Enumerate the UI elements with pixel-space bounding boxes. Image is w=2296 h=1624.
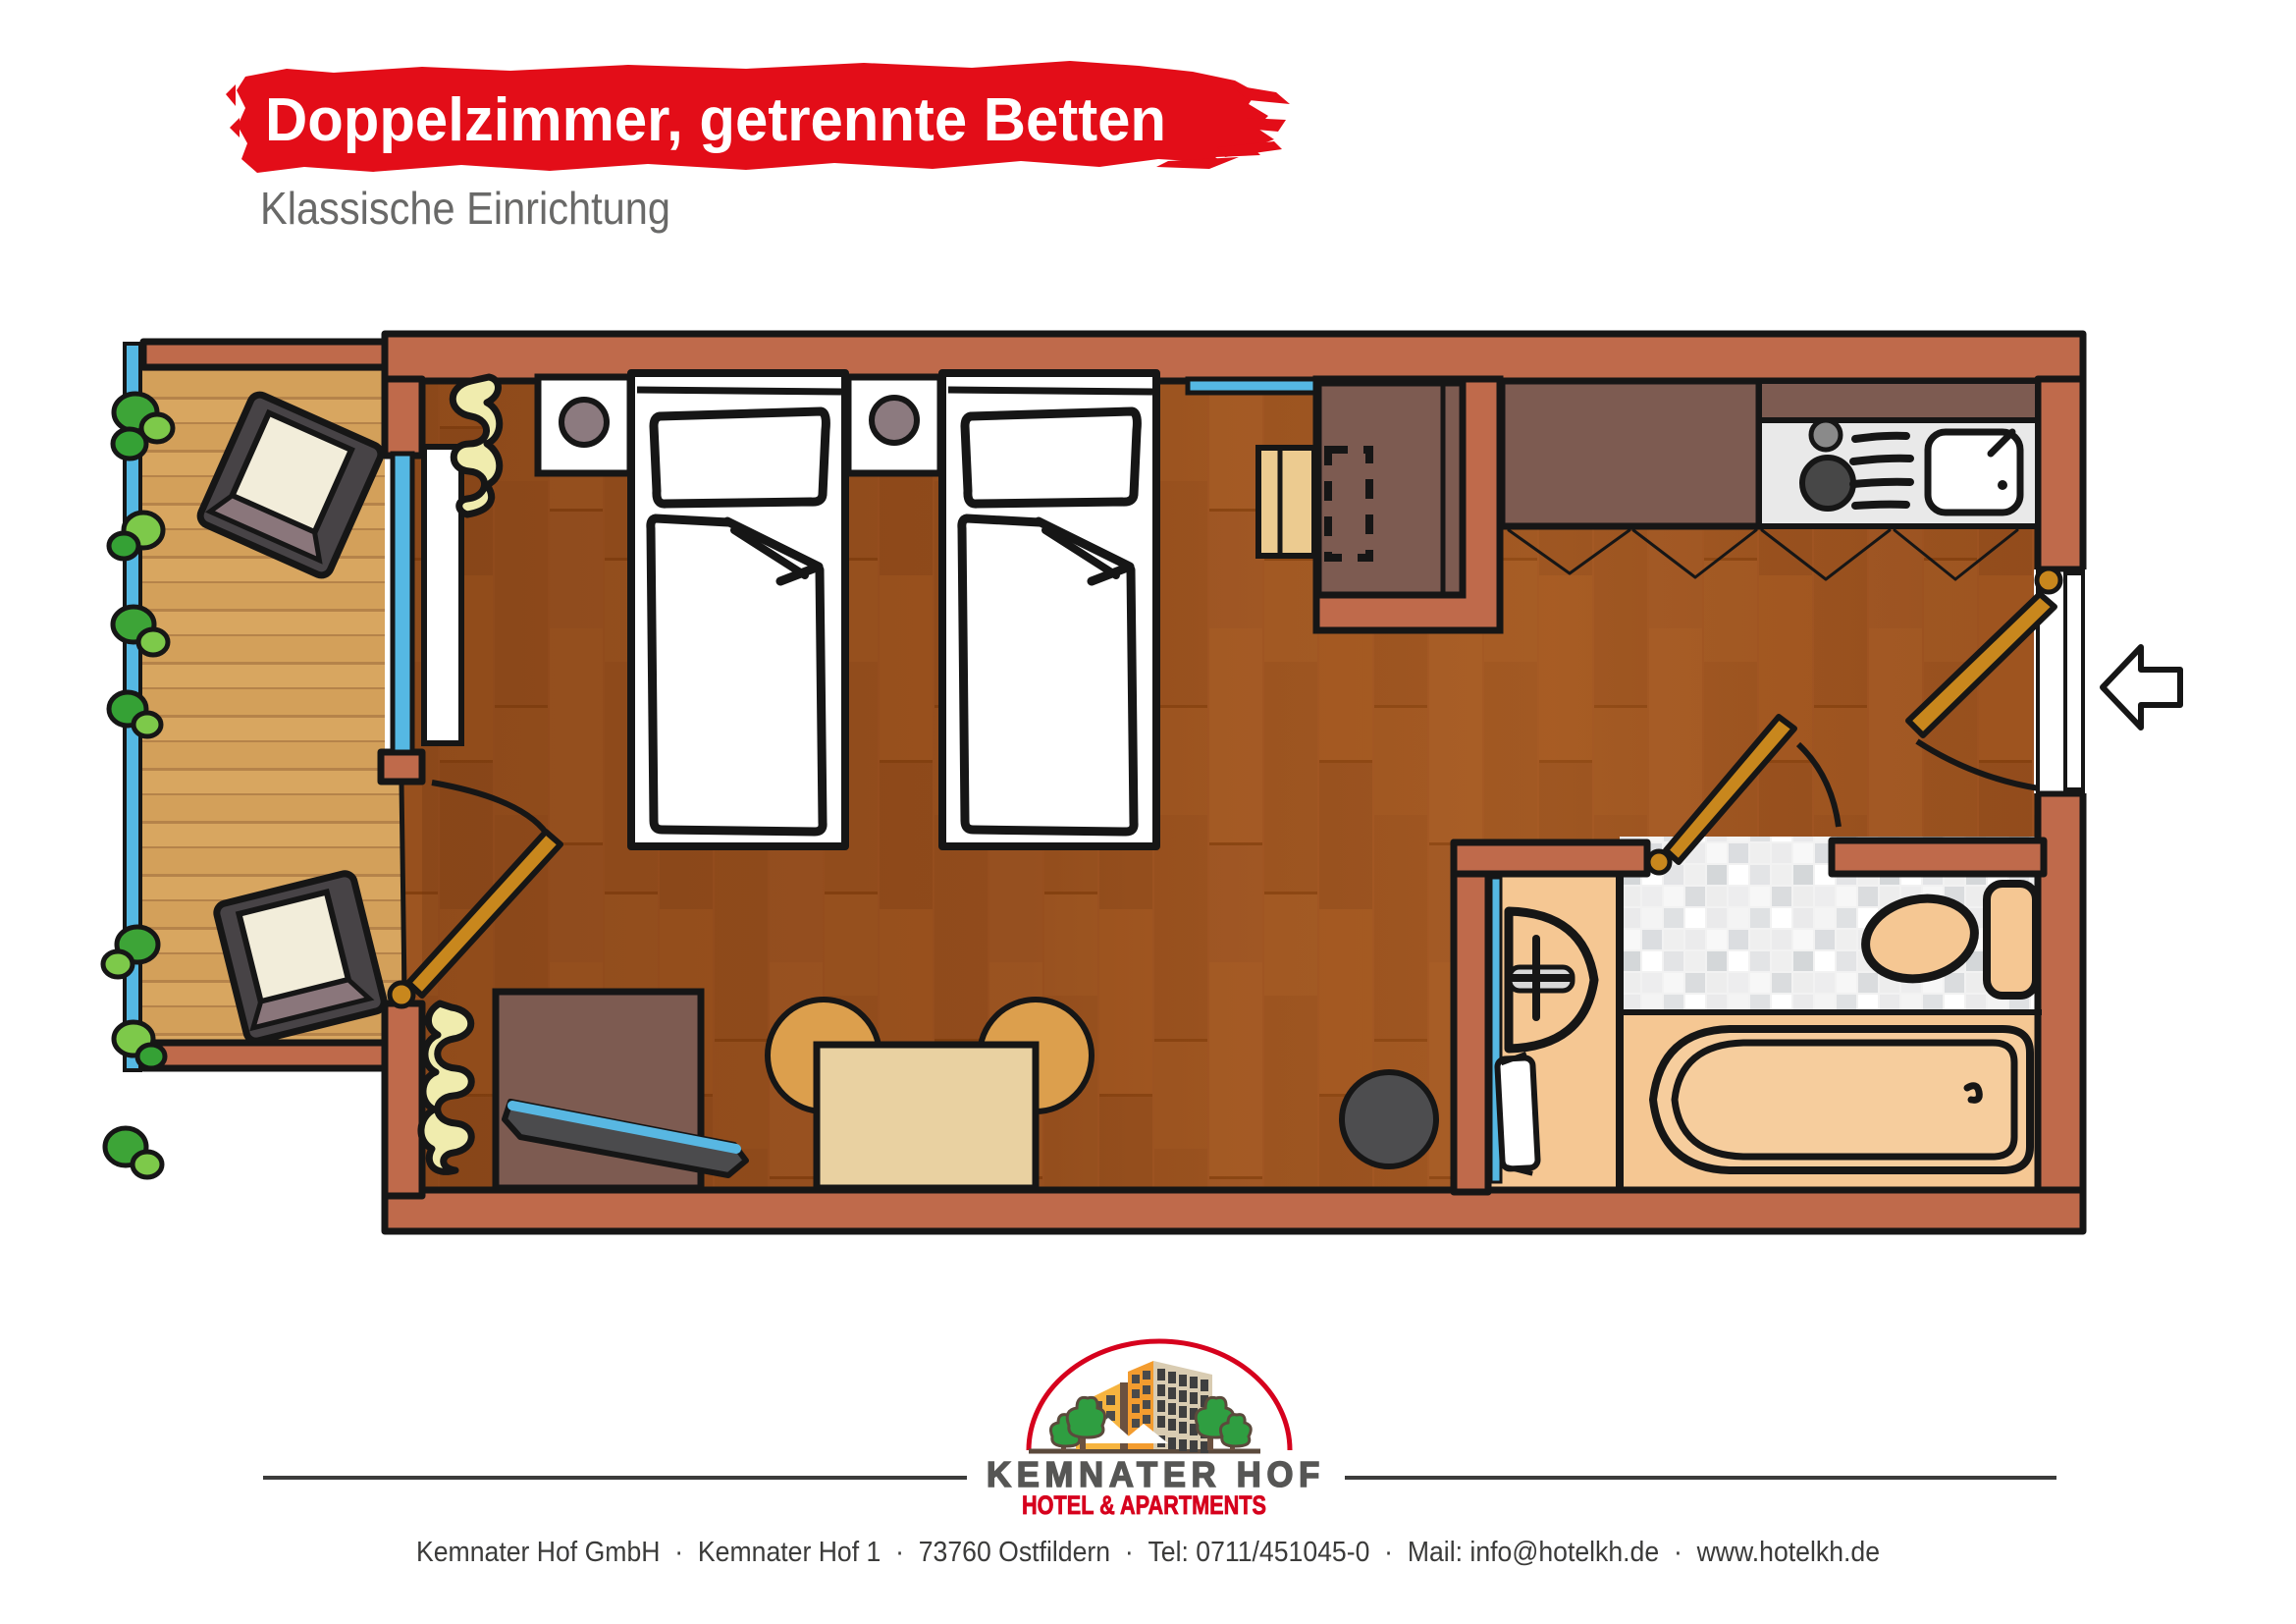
svg-text:Kemnater Hof GmbH · Kemnater: Kemnater Hof GmbH · Kemnater Hof 1 · 737… (416, 1537, 1880, 1568)
svg-text:Klassische Einrichtung: Klassische Einrichtung (260, 183, 670, 234)
svg-text:KEMNATER HOF: KEMNATER HOF (987, 1454, 1325, 1494)
svg-text:Doppelzimmer, getrennte Betten: Doppelzimmer, getrennte Betten (265, 86, 1166, 154)
svg-text:HOTEL & APARTMENTS: HOTEL & APARTMENTS (1022, 1490, 1266, 1520)
